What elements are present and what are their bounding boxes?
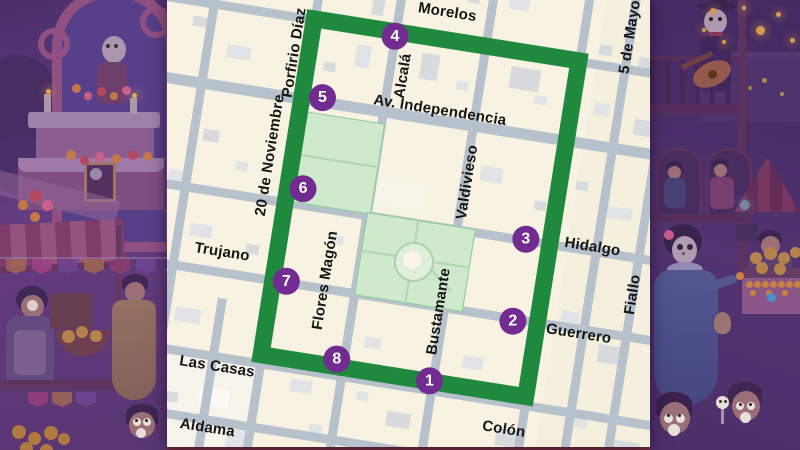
building-footprint [599, 44, 613, 56]
mariachi-eye [718, 17, 722, 21]
marigold-garland [746, 281, 753, 288]
kid-eye [667, 414, 670, 417]
candle-flame [132, 93, 137, 98]
lantern-glow [790, 38, 795, 43]
skeleton-eye [106, 44, 110, 48]
lantern-glow [722, 40, 726, 44]
building-footprint [226, 44, 252, 61]
marigold-garland [794, 281, 800, 288]
marigold-flower [143, 152, 152, 161]
catrina-eye [677, 244, 683, 250]
building-footprint [633, 119, 650, 138]
face-paint-patch [27, 300, 38, 311]
purple-tint-overlay [650, 0, 800, 450]
lantern-glow [756, 26, 765, 35]
rose [30, 190, 42, 202]
photo-portrait [90, 168, 102, 180]
mariachi-eye [709, 17, 713, 21]
bread-roll [756, 262, 768, 274]
bread-roll [62, 330, 75, 343]
building-footprint [174, 306, 202, 324]
marigold-flower [112, 154, 121, 163]
marigold-garland [778, 281, 785, 288]
flower [97, 87, 106, 96]
lit-window [762, 78, 767, 83]
flower [95, 152, 105, 162]
garland-bow [767, 293, 776, 302]
kid-eye [749, 403, 752, 406]
face-paint-patch [136, 428, 146, 438]
flower [84, 92, 92, 100]
dia-de-muertos-mariachi-illustration [650, 0, 800, 450]
steam-wisp [740, 200, 750, 210]
hair-flower [664, 230, 674, 240]
marigold-garland [762, 281, 769, 288]
map-canvas: Morelos Av. Independencia Hidalgo Trujan… [167, 0, 650, 447]
route-stop-marker-6[interactable]: 6 [290, 175, 317, 202]
lantern-glow [710, 8, 716, 14]
bread-roll [40, 444, 53, 450]
bread-roll [20, 442, 33, 450]
hand-marigold [736, 272, 744, 280]
lit-window [748, 86, 752, 90]
route-stop-marker-7[interactable]: 7 [273, 268, 300, 295]
lantern-glow [742, 6, 746, 10]
building-footprint [371, 0, 385, 16]
rose [42, 200, 53, 211]
marigold-garland [750, 290, 756, 296]
route-stop-marker-2[interactable]: 2 [499, 308, 526, 335]
lantern-glow [702, 28, 706, 32]
building-footprint [385, 411, 411, 430]
street-label-trujano: Trujano [193, 239, 251, 264]
marigold-flower [72, 84, 81, 93]
bread-roll [774, 263, 786, 275]
building-footprint [575, 180, 588, 191]
marigold-garland [782, 290, 788, 296]
building-footprint [467, 0, 480, 4]
bread-roll [764, 247, 777, 260]
skull-eye [724, 400, 727, 403]
face-paint-patch [668, 424, 680, 436]
building-footprint [593, 102, 611, 116]
route-stop-marker-8[interactable]: 8 [323, 346, 350, 373]
route-stop-marker-5[interactable]: 5 [309, 84, 336, 111]
skeleton-eye [114, 44, 118, 48]
building-footprint [167, 390, 179, 402]
skull-eye [719, 400, 722, 403]
candle-flame [46, 89, 51, 94]
building-footprint [356, 391, 369, 402]
flower [80, 156, 89, 165]
kid-eye [135, 419, 138, 422]
route-stop-marker-1[interactable]: 1 [416, 367, 443, 394]
marigold-flower [66, 150, 76, 160]
flower [122, 86, 131, 95]
guitar-soundhole [708, 70, 717, 79]
kid-eye [678, 414, 681, 417]
purple-tint-overlay [0, 0, 167, 450]
bread-roll [790, 247, 800, 258]
lit-window [780, 92, 784, 96]
lantern-glow [776, 12, 781, 17]
skull-lollipop [716, 396, 729, 409]
street-label-morelos: Morelos [417, 0, 478, 25]
route-stop-marker-4[interactable]: 4 [382, 23, 409, 50]
bread-roll [44, 426, 58, 440]
walking-route-outline [251, 9, 588, 406]
marigold-garland [770, 281, 777, 288]
building-footprint [509, 0, 531, 12]
bread-roll [76, 326, 88, 338]
screenshot-root: Morelos Av. Independencia Hidalgo Trujan… [0, 0, 800, 450]
bread-roll [90, 330, 102, 342]
dia-de-muertos-ofrenda-illustration [0, 0, 167, 450]
marigold-flower [18, 200, 28, 210]
marigold-garland [754, 281, 761, 288]
building-footprint [202, 129, 220, 143]
flower [128, 150, 138, 160]
catrina-nose [682, 252, 685, 255]
building-footprint [189, 223, 213, 239]
kid-eye [739, 403, 742, 406]
map: Morelos Av. Independencia Hidalgo Trujan… [167, 0, 650, 447]
marigold-garland [786, 281, 793, 288]
kid-eye [145, 419, 148, 422]
bread-roll [12, 425, 26, 439]
building-footprint [289, 378, 313, 394]
marigold-flower [30, 212, 40, 222]
building-footprint [235, 161, 248, 172]
face-paint-patch [740, 412, 751, 423]
marigold-flower [110, 92, 118, 100]
catrina-eye [687, 244, 693, 250]
route-stop-marker-3[interactable]: 3 [512, 226, 539, 253]
bread-roll [58, 433, 70, 445]
